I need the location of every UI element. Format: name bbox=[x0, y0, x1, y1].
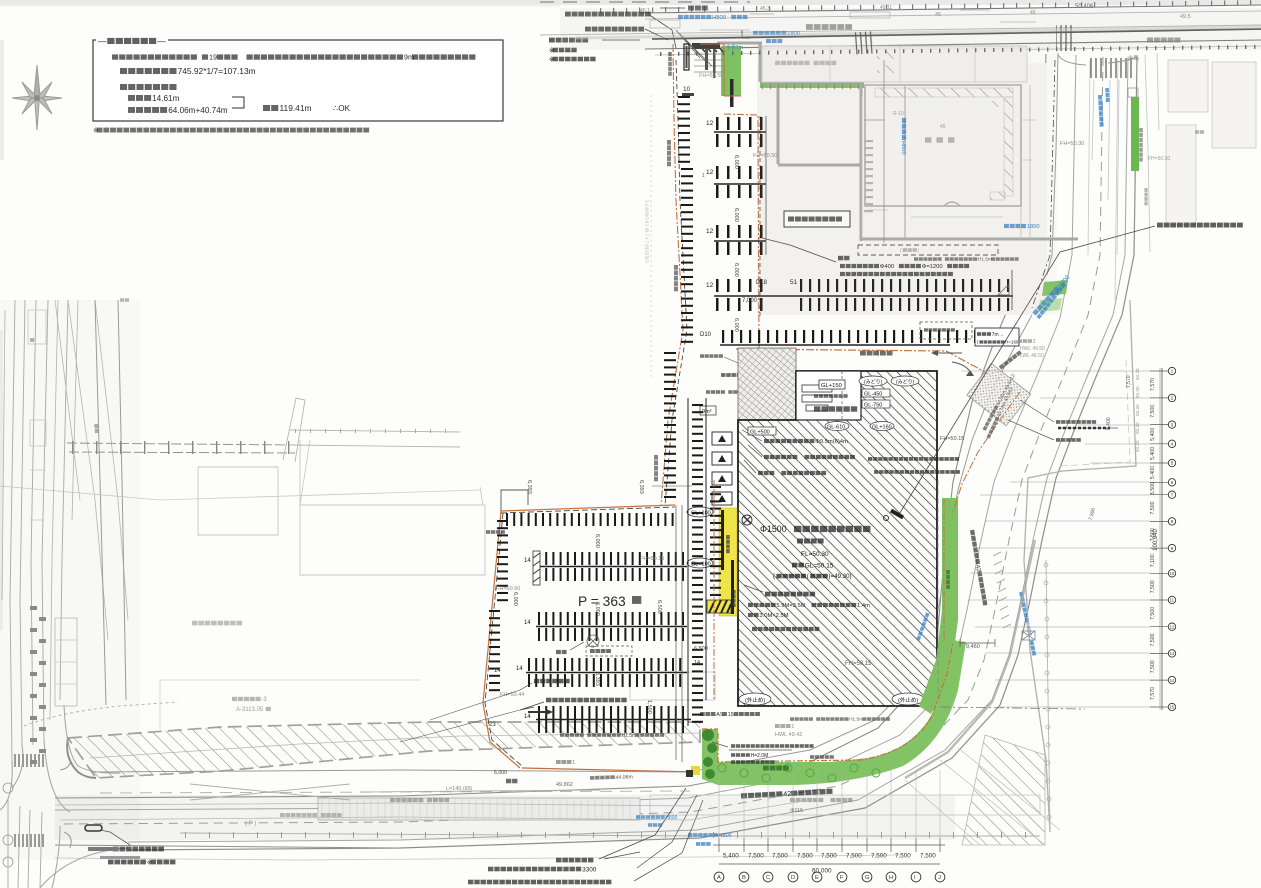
svg-text:7: 7 bbox=[1171, 492, 1174, 498]
svg-text:1,500: 1,500 bbox=[646, 700, 652, 714]
svg-text:6,000: 6,000 bbox=[594, 534, 600, 548]
svg-text:GL=50.15: GL=50.15 bbox=[805, 562, 834, 569]
svg-text:3,500: 3,500 bbox=[1150, 482, 1156, 495]
svg-text:HWL 49.42: HWL 49.42 bbox=[775, 732, 802, 738]
svg-text:水路: 水路 bbox=[1128, 54, 1140, 62]
svg-text:7,570: 7,570 bbox=[1150, 378, 1156, 391]
svg-text:1: 1 bbox=[1171, 369, 1174, 375]
svg-text:9m³: 9m³ bbox=[702, 409, 712, 415]
svg-text:9,460: 9,460 bbox=[966, 644, 980, 650]
svg-text:L=140.005: L=140.005 bbox=[446, 786, 472, 792]
svg-text:∴OK: ∴OK bbox=[333, 104, 351, 113]
svg-text:(外止め): (外止め) bbox=[745, 696, 765, 704]
svg-text:3.0M×2.5M: 3.0M×2.5M bbox=[759, 613, 788, 619]
svg-text:6,000: 6,000 bbox=[733, 155, 739, 169]
svg-text:14: 14 bbox=[524, 620, 531, 626]
svg-text:6,000: 6,000 bbox=[512, 592, 518, 606]
svg-text:FH=50.15: FH=50.15 bbox=[640, 556, 664, 562]
svg-text:1.4m: 1.4m bbox=[857, 603, 870, 609]
svg-text:-3: -3 bbox=[261, 697, 267, 703]
svg-text:7,500: 7,500 bbox=[895, 853, 911, 860]
svg-text:(みどり): (みどり) bbox=[864, 379, 883, 386]
svg-text:H1.5m: H1.5m bbox=[849, 717, 863, 723]
svg-text:6,393: 6,393 bbox=[594, 672, 600, 686]
svg-text:6,000: 6,000 bbox=[733, 318, 739, 332]
svg-text:F: F bbox=[840, 875, 844, 881]
svg-text:50.30: 50.30 bbox=[1135, 386, 1140, 398]
svg-text:50.30: 50.30 bbox=[1135, 368, 1140, 380]
svg-text:FH=50.15: FH=50.15 bbox=[845, 661, 872, 667]
svg-text:5,400: 5,400 bbox=[1150, 428, 1156, 441]
svg-text:12: 12 bbox=[706, 282, 714, 289]
svg-text:13: 13 bbox=[1170, 651, 1175, 656]
svg-text:5: 5 bbox=[1171, 461, 1174, 467]
svg-text:GL-750: GL-750 bbox=[864, 403, 882, 409]
svg-text:5,400: 5,400 bbox=[1150, 466, 1156, 479]
svg-text:14: 14 bbox=[516, 666, 523, 672]
svg-text:6: 6 bbox=[1171, 480, 1174, 486]
svg-text:4: 4 bbox=[1171, 442, 1174, 448]
svg-text:LWL 48.50: LWL 48.50 bbox=[1020, 353, 1044, 359]
svg-text:14: 14 bbox=[1170, 678, 1175, 683]
svg-text:A: A bbox=[717, 875, 721, 881]
svg-text:7,570: 7,570 bbox=[1150, 687, 1156, 700]
svg-text:10: 10 bbox=[683, 86, 691, 93]
svg-text:6,000: 6,000 bbox=[594, 602, 600, 616]
svg-text:7,500: 7,500 bbox=[920, 853, 936, 860]
svg-text:3300: 3300 bbox=[582, 866, 597, 873]
svg-text:H1.5m: H1.5m bbox=[622, 733, 637, 739]
svg-text:5,400: 5,400 bbox=[1106, 417, 1112, 430]
svg-text:44.06m: 44.06m bbox=[615, 774, 633, 781]
svg-text:FH=50.50: FH=50.50 bbox=[699, 73, 723, 79]
svg-text:50.30: 50.30 bbox=[1135, 404, 1140, 416]
svg-text:5,400: 5,400 bbox=[1150, 447, 1156, 460]
svg-text:GL+500: GL+500 bbox=[750, 430, 770, 436]
svg-text:―: ― bbox=[98, 36, 107, 46]
svg-text:23: 23 bbox=[489, 722, 496, 728]
svg-text:50.30: 50.30 bbox=[1135, 422, 1140, 434]
svg-text:E: E bbox=[815, 875, 819, 881]
svg-text:6,393: 6,393 bbox=[638, 480, 644, 494]
svg-text:7,500: 7,500 bbox=[1150, 405, 1156, 418]
svg-text:1: 1 bbox=[702, 173, 705, 179]
svg-text:7,500: 7,500 bbox=[1150, 633, 1156, 646]
svg-text:FH=50.50: FH=50.50 bbox=[496, 586, 520, 592]
svg-text:GL+160: GL+160 bbox=[872, 425, 892, 431]
svg-text:1: 1 bbox=[572, 760, 575, 766]
svg-text:7,500: 7,500 bbox=[772, 853, 788, 860]
svg-text:FH=50.30: FH=50.30 bbox=[1148, 156, 1170, 162]
svg-text:10: 10 bbox=[1170, 571, 1175, 576]
svg-text:6,000: 6,000 bbox=[733, 208, 739, 222]
svg-text:(外止め): (外止め) bbox=[898, 696, 918, 704]
svg-text:49.862: 49.862 bbox=[556, 782, 573, 788]
svg-text:7,500: 7,500 bbox=[797, 853, 813, 860]
svg-text:A-3113.05: A-3113.05 bbox=[236, 707, 264, 713]
svg-text:D: D bbox=[791, 875, 795, 881]
svg-text:12: 12 bbox=[1170, 624, 1175, 629]
svg-text:2: 2 bbox=[1171, 396, 1174, 402]
svg-text:GL-610: GL-610 bbox=[827, 425, 845, 431]
svg-text:7,500: 7,500 bbox=[821, 853, 837, 860]
svg-text:7,500: 7,500 bbox=[1150, 501, 1156, 514]
svg-text:6,500: 6,500 bbox=[656, 600, 662, 614]
svg-text:2-1.9(4)#7-0.1 09.7.4.7 (4)(1): 2-1.9(4)#7-0.1 09.7.4.7 (4)(1)(3).0 bbox=[645, 200, 650, 264]
svg-text:6,000: 6,000 bbox=[494, 770, 507, 776]
svg-text:Φ1500: Φ1500 bbox=[760, 524, 787, 534]
svg-text:7,500: 7,500 bbox=[748, 853, 764, 860]
svg-text:9: 9 bbox=[1171, 546, 1174, 552]
svg-text:14: 14 bbox=[524, 558, 531, 564]
svg-text:6,000: 6,000 bbox=[733, 263, 739, 277]
svg-text:7,100: 7,100 bbox=[1150, 554, 1156, 567]
svg-text:8: 8 bbox=[1171, 519, 1174, 525]
svg-text:GL+150: GL+150 bbox=[821, 383, 842, 389]
svg-text:15: 15 bbox=[1170, 705, 1175, 710]
svg-text:14: 14 bbox=[524, 714, 531, 720]
svg-text:J: J bbox=[938, 875, 941, 881]
svg-text:5.9M×3.56I: 5.9M×3.56I bbox=[776, 603, 806, 609]
svg-text:12: 12 bbox=[706, 228, 714, 235]
svg-text:FH=50.30: FH=50.30 bbox=[1060, 141, 1084, 147]
svg-text:H=2.0M: H=2.0M bbox=[751, 753, 769, 759]
svg-text:19: 19 bbox=[209, 53, 217, 62]
svg-text:6,393: 6,393 bbox=[526, 480, 532, 494]
svg-text:60,000: 60,000 bbox=[812, 868, 832, 875]
svg-text:)=49.30): )=49.30) bbox=[828, 573, 851, 580]
svg-text:7,000: 7,000 bbox=[742, 298, 758, 304]
svg-text:12: 12 bbox=[706, 169, 714, 176]
svg-text:5,400: 5,400 bbox=[723, 853, 739, 860]
svg-text:FL=50.30: FL=50.30 bbox=[801, 551, 829, 558]
svg-text:14.61m: 14.61m bbox=[152, 94, 179, 103]
svg-text:3: 3 bbox=[1171, 422, 1174, 428]
svg-text:100,940: 100,940 bbox=[1153, 529, 1159, 551]
svg-text:119.41m: 119.41m bbox=[280, 103, 312, 113]
svg-text:H: H bbox=[889, 875, 893, 881]
svg-text:7m→: 7m→ bbox=[992, 332, 1004, 338]
svg-text:7,500: 7,500 bbox=[1150, 660, 1156, 673]
svg-text:D10: D10 bbox=[700, 332, 712, 338]
svg-text:14: 14 bbox=[694, 660, 700, 666]
svg-text:Φ9.5m(6)4m: Φ9.5m(6)4m bbox=[815, 439, 848, 445]
svg-text:―: ― bbox=[157, 36, 166, 46]
svg-text:6,500: 6,500 bbox=[694, 646, 708, 652]
svg-text:7,500: 7,500 bbox=[846, 853, 862, 860]
svg-text:7,570: 7,570 bbox=[1126, 375, 1132, 388]
svg-text:1: 1 bbox=[791, 724, 794, 730]
svg-text:(みどり): (みどり) bbox=[896, 379, 915, 386]
svg-text:15: 15 bbox=[728, 712, 734, 718]
svg-text:50.30: 50.30 bbox=[1135, 440, 1140, 452]
svg-text:745.92*1/7=107.13m: 745.92*1/7=107.13m bbox=[178, 66, 256, 76]
svg-text:7,500: 7,500 bbox=[1150, 580, 1156, 593]
svg-text:2: 2 bbox=[1033, 339, 1036, 345]
svg-text:C: C bbox=[766, 875, 770, 881]
svg-text:P = 363: P = 363 bbox=[578, 594, 626, 609]
svg-text:7,500: 7,500 bbox=[1150, 607, 1156, 620]
svg-text:11: 11 bbox=[1170, 598, 1175, 603]
svg-text:12: 12 bbox=[706, 120, 714, 127]
svg-text:HWL 49.50: HWL 49.50 bbox=[1020, 346, 1045, 352]
svg-text:G: G bbox=[865, 875, 870, 881]
svg-text:B: B bbox=[742, 875, 746, 881]
svg-text:14: 14 bbox=[494, 668, 501, 674]
svg-text:GL-450: GL-450 bbox=[864, 392, 882, 398]
svg-text:7,500: 7,500 bbox=[871, 853, 887, 860]
svg-text:64.06m+40.74m: 64.06m+40.74m bbox=[168, 106, 228, 115]
